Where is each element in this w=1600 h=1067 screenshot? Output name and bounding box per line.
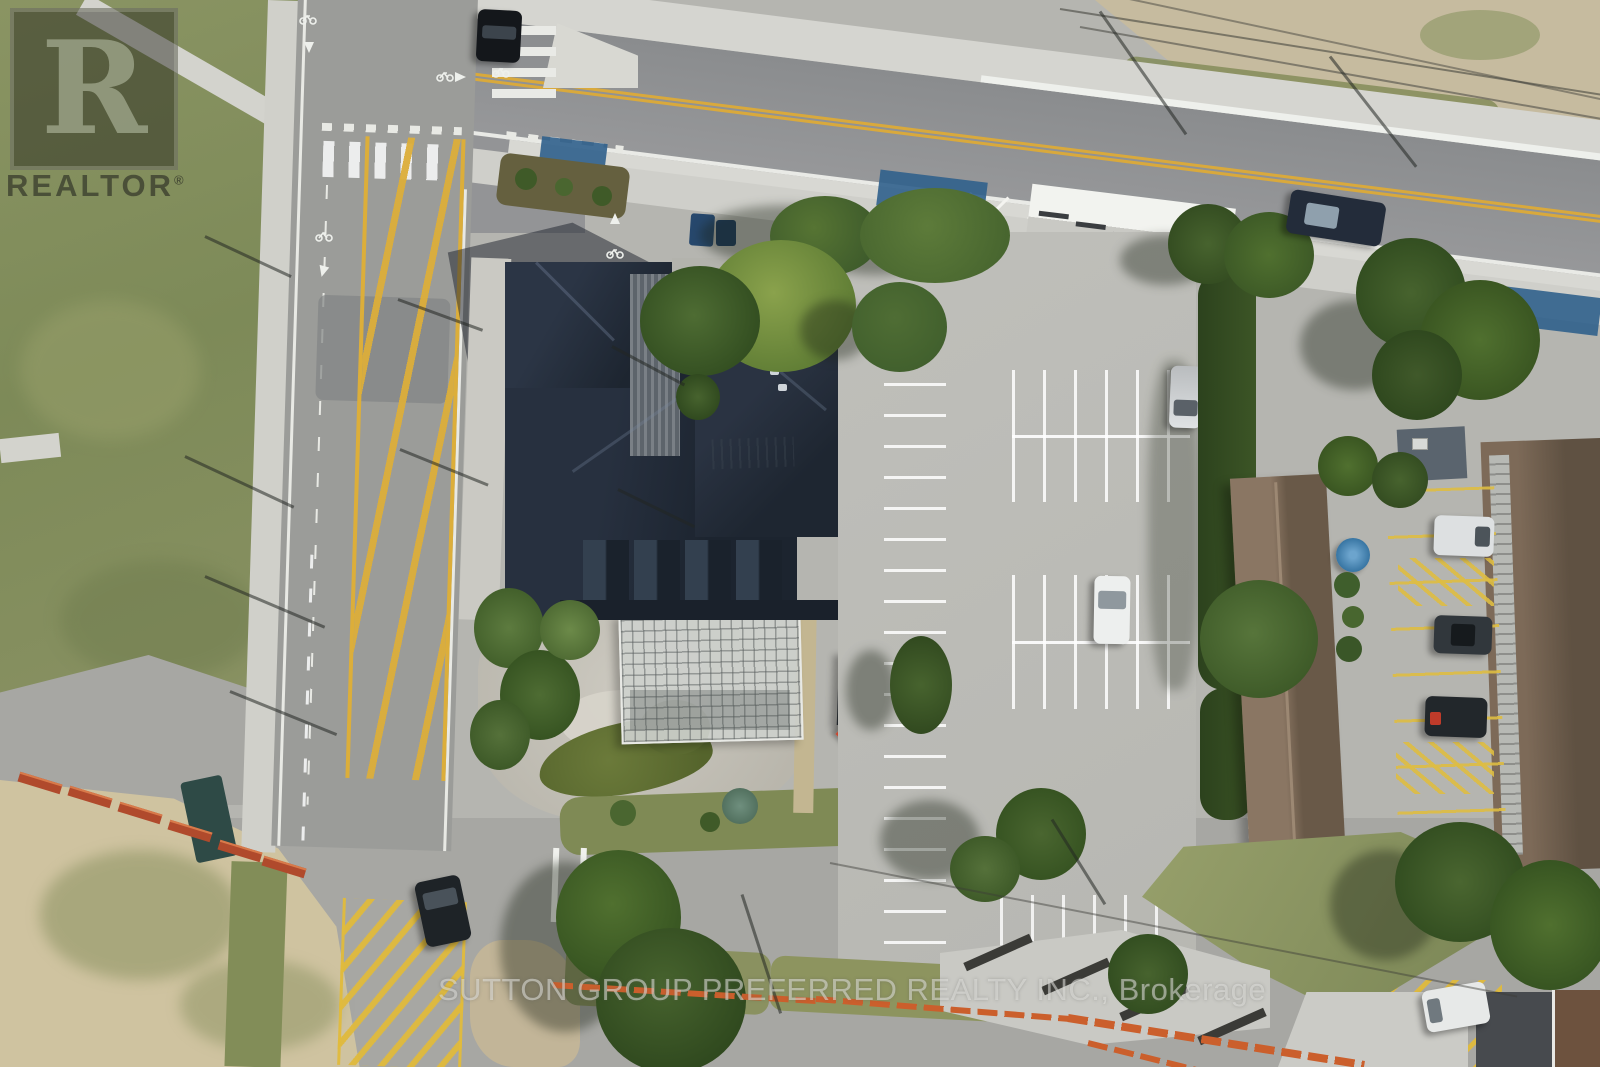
car-windshield — [1304, 202, 1340, 230]
yellow-ladder-marking — [345, 136, 465, 781]
tree — [852, 282, 947, 372]
greenhouse-shade — [630, 690, 790, 730]
bicycle-marking-icon — [436, 70, 454, 82]
shrub — [610, 800, 636, 826]
blue-umbrella — [1336, 538, 1370, 572]
tree-courtyard — [640, 266, 760, 376]
tree-shadow — [846, 650, 896, 730]
aerial-photo: R REALTOR® SUTTON GROUP PREFERRED REALTY… — [0, 0, 1600, 1067]
dark-car-right-lane — [1433, 615, 1492, 655]
bush — [1336, 636, 1362, 662]
wall-step — [1076, 221, 1106, 230]
arrow-marking — [304, 42, 314, 53]
bush — [1342, 606, 1364, 628]
yellow-hatch-zone — [1398, 558, 1494, 606]
car-windshield — [1098, 591, 1126, 609]
tree-over-brown-building — [1200, 580, 1318, 698]
shrub-cluster — [470, 700, 530, 770]
grass-patch — [20, 300, 200, 440]
tree — [1372, 330, 1462, 420]
tree — [860, 188, 1010, 283]
black-car-top-intersection — [476, 9, 523, 63]
bicycle-marking-icon — [606, 247, 624, 259]
van-windshield — [1426, 998, 1443, 1023]
sand-grass-patch — [40, 850, 240, 980]
white-car-parking-lot — [1093, 576, 1130, 645]
grass-verge-west — [224, 861, 287, 1067]
roof-skylight — [712, 437, 795, 470]
rooftop-ac — [1412, 438, 1428, 450]
red-object — [1430, 712, 1441, 725]
tree-courtyard-small — [676, 374, 720, 420]
tree — [1108, 934, 1188, 1014]
shrub — [555, 178, 573, 196]
yellow-hatch-zone — [1396, 742, 1494, 794]
wall-step — [1039, 211, 1069, 220]
arrow-marking — [610, 213, 620, 224]
roof-vent — [778, 384, 787, 391]
blue-green-bush — [722, 788, 758, 824]
bicycle-marking-icon — [315, 230, 333, 242]
arrow-marking — [455, 72, 466, 82]
roof-eave-band — [560, 600, 885, 620]
tree-garden-east — [890, 636, 952, 734]
car-windshield — [422, 887, 460, 911]
bush — [1334, 572, 1360, 598]
tree-southeast — [1490, 860, 1600, 990]
car-windshield — [1173, 400, 1198, 417]
van-windshield — [1474, 526, 1490, 547]
gravel-grass-patch — [1420, 10, 1540, 60]
car-windshield — [1451, 623, 1475, 647]
se-corner-building-brown — [1552, 990, 1600, 1067]
bicycle-marking-icon — [492, 66, 510, 78]
shrub — [592, 186, 612, 206]
car-windshield — [482, 25, 516, 40]
bicycle-marking-icon — [299, 13, 317, 25]
side-street-left — [271, 0, 478, 851]
shrub — [700, 812, 720, 832]
tree — [1318, 436, 1378, 496]
elephant-feet-crossing — [322, 123, 462, 135]
white-van-right-lane — [1433, 515, 1494, 557]
tree — [1372, 452, 1428, 508]
shrub-cluster — [540, 600, 600, 660]
shrub — [515, 168, 537, 190]
